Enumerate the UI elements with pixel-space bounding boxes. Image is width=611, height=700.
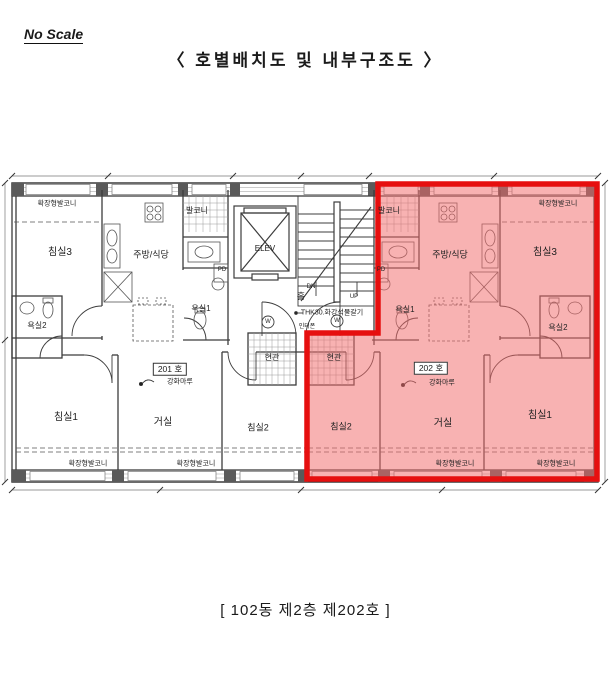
unit-number-201: 201 호 xyxy=(153,363,187,376)
elevator-label: ELEV xyxy=(255,245,275,253)
room-label-bedroom3-left: 침실3 xyxy=(48,248,72,258)
duct-label-right: PD xyxy=(377,267,385,273)
core-elevator xyxy=(234,206,296,280)
room-label-bath2-right: 욕실2 xyxy=(548,324,567,332)
door-mark-left: W xyxy=(265,319,271,325)
intercom-label: 인터폰 xyxy=(299,324,316,330)
room-label-bedroom2-left: 침실2 xyxy=(247,424,269,433)
room-label-bedroom1-left: 침실1 xyxy=(54,413,78,423)
hall-finish-label: THK30.화강석물갈기 xyxy=(301,310,363,317)
room-label-entrance-left: 현관 xyxy=(265,354,280,362)
room-label-bedroom1-right: 침실1 xyxy=(528,411,552,421)
door-mark-right: W xyxy=(334,318,340,324)
room-label-bedroom3-right: 침실3 xyxy=(533,248,557,258)
room-label-balcony-right: 발코니 xyxy=(378,207,400,215)
room-label-living-left: 거실 xyxy=(154,418,172,428)
duct-label-left: PD xyxy=(218,267,226,273)
floor-plan-page: No Scale 〈 호별배치도 및 내부구조도 〉 xyxy=(0,0,611,700)
room-label-bath2-left: 욕실2 xyxy=(27,322,46,330)
room-label-ext-balcony-top-left: 확장형발코니 xyxy=(38,201,77,208)
unit-number-202: 202 호 xyxy=(414,362,448,375)
room-label-ext-balcony-b2-right: 확장형발코니 xyxy=(537,461,576,468)
unit-caption: [ 102동 제2층 제202호 ] xyxy=(220,599,390,620)
room-label-bath1-left: 욕실1 xyxy=(191,305,210,313)
room-label-bath1-right: 욕실1 xyxy=(395,306,414,314)
room-label-balcony-left: 발코니 xyxy=(186,207,208,215)
room-label-kitchen-right: 주방/식당 xyxy=(432,251,468,260)
hall-label: 홀 xyxy=(297,293,305,302)
stairs-down-label: DN xyxy=(307,284,316,290)
room-label-entrance-right: 현관 xyxy=(327,354,342,362)
room-label-ext-balcony-b1-right: 확장형발코니 xyxy=(436,461,475,468)
floor-plan-drawing xyxy=(0,0,611,700)
room-label-ext-balcony-b2-left: 확장형발코니 xyxy=(177,461,216,468)
room-label-bedroom2-right: 침실2 xyxy=(330,423,352,432)
room-label-ext-balcony-top-right: 확장형발코니 xyxy=(539,201,578,208)
floor-finish-201: 강화마루 xyxy=(167,379,193,386)
room-label-living-right: 거실 xyxy=(434,419,452,429)
room-label-ext-balcony-b1-left: 확장형발코니 xyxy=(69,461,108,468)
floor-finish-202: 강화마루 xyxy=(429,380,455,387)
stairs-up-label: UP xyxy=(350,294,358,300)
room-label-kitchen-left: 주방/식당 xyxy=(133,251,169,260)
